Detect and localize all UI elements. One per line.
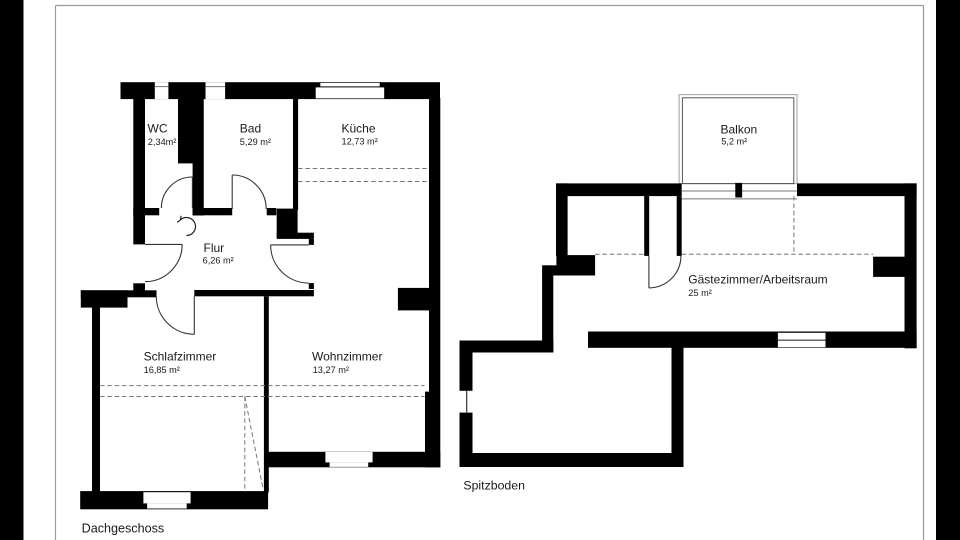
svg-text:Dachgeschoss: Dachgeschoss [82,522,165,536]
svg-text:13,27 m²: 13,27 m² [313,365,349,375]
svg-text:Gästezimmer/Arbeitsraum: Gästezimmer/Arbeitsraum [688,273,827,287]
svg-text:25 m²: 25 m² [688,288,712,298]
svg-text:Küche: Küche [342,122,376,136]
svg-text:6,26 m²: 6,26 m² [203,256,234,266]
svg-text:Schlafzimmer: Schlafzimmer [144,350,217,364]
svg-text:5,29 m²: 5,29 m² [240,137,271,147]
svg-text:12,73 m²: 12,73 m² [342,137,378,147]
svg-text:Bad: Bad [240,122,261,136]
svg-text:16,85 m²: 16,85 m² [144,365,180,375]
svg-text:Spitzboden: Spitzboden [463,479,525,493]
svg-text:2,34m²: 2,34m² [148,137,177,147]
svg-text:Flur: Flur [204,241,225,255]
svg-text:WC: WC [148,122,168,136]
svg-text:5,2 m²: 5,2 m² [721,136,747,146]
svg-text:Balkon: Balkon [721,123,758,137]
svg-text:Wohnzimmer: Wohnzimmer [312,350,382,364]
